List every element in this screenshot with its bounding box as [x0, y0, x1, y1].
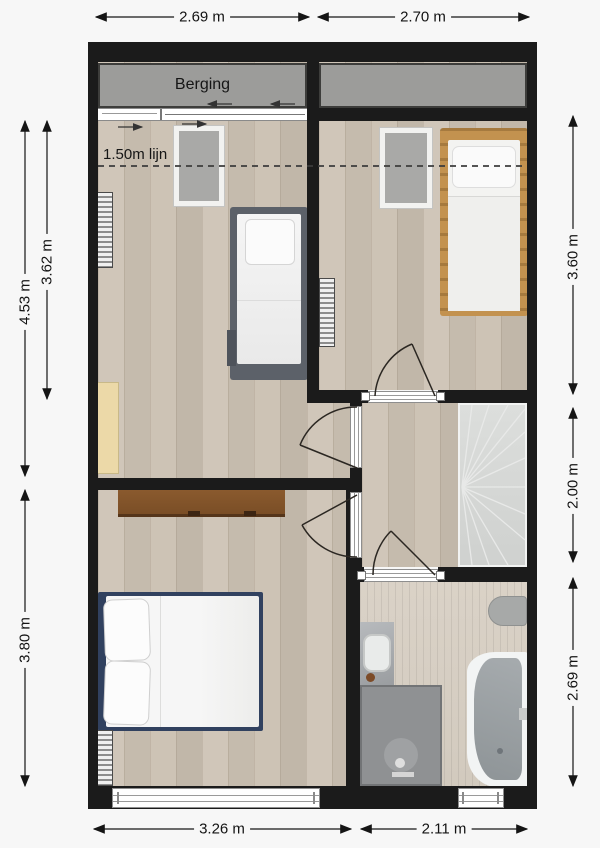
dimension-label-left-inner-upper: 3.62 m [39, 234, 56, 290]
dimension-label-right-middle: 2.00 m [565, 458, 582, 514]
door-sill [350, 492, 362, 558]
bathtub-basin [474, 658, 522, 780]
duvet-fold [160, 596, 161, 727]
pillow [103, 598, 151, 662]
desk-handle [188, 511, 200, 516]
door-sill [368, 391, 438, 403]
dimension-label-bottom-right: 2.11 m [417, 821, 472, 838]
dimension-label-top-left: 2.69 m [174, 9, 230, 26]
window-frame-tick [497, 792, 499, 804]
radiator [97, 730, 113, 786]
duvet [448, 196, 520, 311]
radiator [97, 192, 113, 268]
skylight-window [380, 128, 432, 208]
desk-handle [244, 511, 256, 516]
pillow [245, 219, 295, 265]
door-sill [350, 406, 362, 468]
shower-head [395, 758, 405, 768]
dimension-label-left-outer-upper: 4.53 m [17, 274, 34, 330]
room-landing-floor [362, 403, 458, 567]
door-post [436, 571, 445, 580]
door-post [436, 392, 445, 401]
door-sill [364, 569, 438, 582]
pillow [103, 660, 151, 726]
skylight-window [174, 126, 224, 206]
height-line-label: 1.50m lijn [103, 146, 167, 163]
room-bedroom-left-floor-ext [307, 403, 350, 478]
floor-plan: Berging 1.50m lijn 2.69 m 2.70 m 3.26 m … [0, 0, 600, 848]
dimension-label-top-right: 2.70 m [395, 9, 451, 26]
sink [363, 634, 391, 672]
wall-center-vertical [307, 60, 319, 403]
dimension-label-right-lower: 2.69 m [565, 650, 582, 706]
bathtub-faucet [519, 708, 527, 720]
window-frame-tick [117, 792, 119, 804]
wall-bathroom-top [438, 567, 527, 582]
wall-right [527, 42, 537, 809]
door-post [357, 571, 366, 580]
door-post [361, 392, 370, 401]
bed-rail [227, 330, 236, 366]
window-sill [112, 788, 320, 808]
sliding-door-divider [160, 109, 162, 120]
wall-storage-right [319, 108, 527, 121]
wall-bedroom-left-bottom [88, 478, 362, 490]
wall-left [88, 42, 98, 809]
soap-dish [366, 673, 375, 682]
dimension-label-left-outer-lower: 3.80 m [17, 612, 34, 668]
shower-fixture [392, 772, 414, 777]
toilet [488, 596, 527, 626]
staircase [458, 403, 527, 567]
wall-top [88, 42, 537, 62]
sheet-fold [237, 300, 301, 301]
radiator [319, 278, 335, 347]
window-frame-tick [462, 792, 464, 804]
sliding-door-panel [165, 114, 305, 115]
wall-landing-left [350, 466, 362, 493]
storage-room-label: Berging [98, 76, 307, 94]
wall-bedroom-right-bottom [438, 390, 527, 403]
dimension-label-right-upper: 3.60 m [565, 229, 582, 285]
pillow [452, 146, 516, 188]
window-frame-tick [313, 792, 315, 804]
desk [118, 490, 285, 517]
bathtub-drain [497, 748, 503, 754]
dimension-label-bottom-left: 3.26 m [194, 821, 250, 838]
storage-attic-right [319, 63, 527, 108]
sliding-door-panel [102, 113, 157, 114]
wardrobe [97, 382, 119, 474]
